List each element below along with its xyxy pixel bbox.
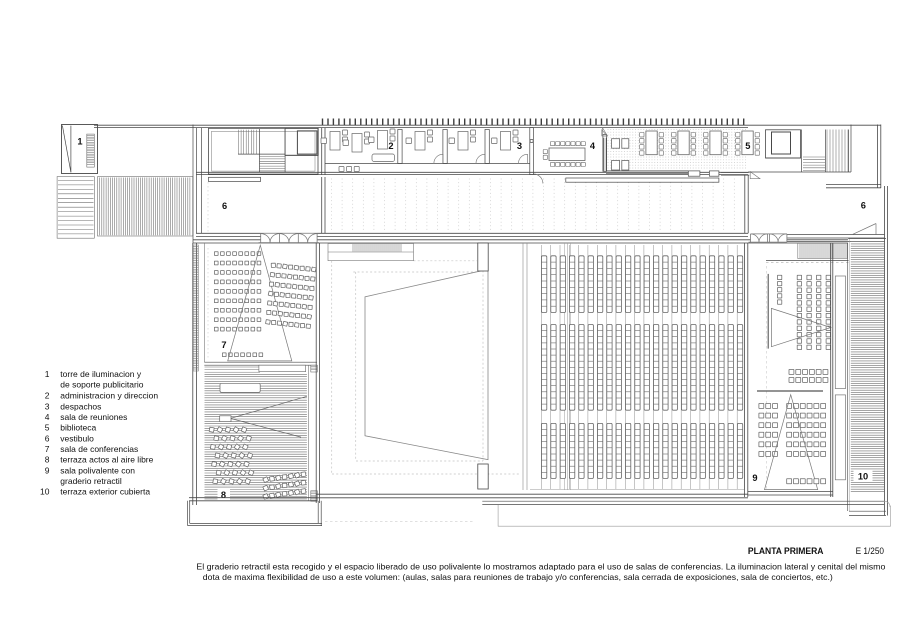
svg-text:terraza actos al aire libre: terraza actos al aire libre (60, 455, 153, 465)
svg-text:5: 5 (745, 141, 750, 151)
svg-text:4: 4 (45, 412, 50, 422)
svg-text:graderio retractil: graderio retractil (60, 476, 122, 486)
svg-text:6: 6 (222, 201, 227, 211)
svg-text:sala de reuniones: sala de reuniones (60, 412, 127, 422)
svg-text:PLANTA PRIMERA: PLANTA PRIMERA (748, 546, 824, 556)
svg-text:terraza exterior cubierta: terraza exterior cubierta (60, 486, 150, 496)
svg-text:5: 5 (45, 423, 50, 433)
svg-text:8: 8 (221, 490, 226, 500)
svg-text:9: 9 (45, 466, 50, 476)
svg-text:administracion y direccion: administracion y direccion (60, 390, 158, 400)
svg-text:1: 1 (45, 369, 50, 379)
svg-text:sala de conferencias: sala de conferencias (60, 444, 138, 454)
svg-text:El graderio retractil esta rec: El graderio retractil esta recogido y el… (196, 562, 885, 572)
svg-text:6: 6 (861, 201, 866, 211)
svg-text:7: 7 (45, 444, 50, 454)
svg-text:7: 7 (221, 340, 226, 350)
svg-text:2: 2 (388, 141, 393, 151)
svg-text:2: 2 (45, 390, 50, 400)
svg-text:4: 4 (590, 141, 596, 151)
svg-text:10: 10 (40, 486, 50, 496)
svg-text:8: 8 (45, 455, 50, 465)
svg-text:6: 6 (45, 433, 50, 443)
svg-text:E 1/250: E 1/250 (856, 546, 884, 556)
svg-text:3: 3 (45, 401, 50, 411)
svg-text:3: 3 (517, 141, 522, 151)
svg-text:1: 1 (77, 137, 82, 147)
svg-text:despachos: despachos (60, 401, 101, 411)
svg-text:vestibulo: vestibulo (60, 433, 94, 443)
svg-text:sala polivalente con: sala polivalente con (60, 466, 135, 476)
svg-text:10: 10 (858, 472, 868, 482)
svg-text:dota de maxima flexibilidad de: dota de maxima flexibilidad de uso a est… (203, 572, 833, 582)
svg-text:biblioteca: biblioteca (60, 423, 96, 433)
svg-text:9: 9 (752, 473, 757, 483)
svg-text:torre de iluminacion y: torre de iluminacion y (60, 369, 142, 379)
svg-text:de soporte publicitario: de soporte publicitario (60, 380, 143, 390)
